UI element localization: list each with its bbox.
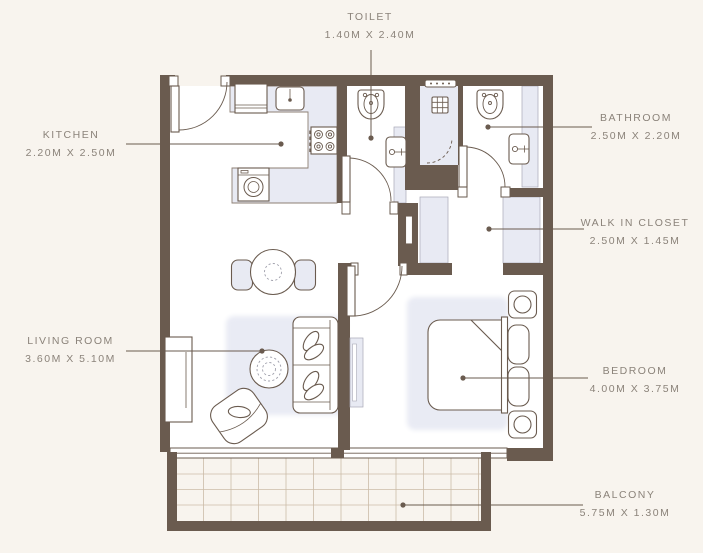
bathroom-sink-icon bbox=[509, 134, 530, 164]
room-dims: 1.40M X 2.40M bbox=[285, 30, 455, 41]
washing-machine-icon bbox=[238, 168, 269, 201]
label-balcony: BALCONY 5.75M X 1.30M bbox=[540, 490, 703, 519]
bathroom-wc-icon bbox=[477, 90, 503, 119]
sofa bbox=[293, 317, 338, 413]
fridge-icon bbox=[235, 84, 267, 113]
nightstand-bottom bbox=[509, 411, 537, 438]
closet-wardrobe-right bbox=[503, 197, 540, 263]
room-name: BALCONY bbox=[540, 490, 703, 501]
room-name: BEDROOM bbox=[550, 366, 703, 377]
kitchen-sink-icon bbox=[276, 87, 304, 110]
headboard bbox=[502, 317, 508, 413]
room-dims: 4.00M X 3.75M bbox=[550, 384, 703, 395]
label-kitchen: KITCHEN 2.20M X 2.50M bbox=[0, 130, 142, 159]
label-bedroom: BEDROOM 4.00M X 3.75M bbox=[550, 366, 703, 395]
room-name: TOILET bbox=[285, 12, 455, 23]
stove-icon bbox=[309, 127, 337, 154]
room-name: BATHROOM bbox=[551, 113, 703, 124]
label-bathroom: BATHROOM 2.50M X 2.20M bbox=[551, 113, 703, 142]
closet-wardrobe-left bbox=[420, 197, 448, 263]
towel-rail-icon bbox=[425, 80, 456, 87]
room-dims: 3.60M X 5.10M bbox=[0, 354, 141, 365]
room-dims: 2.50M X 2.20M bbox=[551, 131, 703, 142]
room-name: LIVING ROOM bbox=[0, 336, 141, 347]
room-dims: 5.75M X 1.30M bbox=[540, 508, 703, 519]
toilet-sink-icon bbox=[386, 137, 407, 167]
room-dims: 2.50M X 1.45M bbox=[550, 236, 703, 247]
nightstand-top bbox=[509, 291, 537, 318]
floorplan-drawing bbox=[0, 0, 703, 553]
bedroom-tv-console bbox=[350, 338, 363, 407]
label-living-room: LIVING ROOM 3.60M X 5.10M bbox=[0, 336, 141, 365]
room-dims: 2.20M X 2.50M bbox=[0, 148, 142, 159]
label-walk-in-closet: WALK IN CLOSET 2.50M X 1.45M bbox=[550, 218, 703, 247]
room-name: KITCHEN bbox=[0, 130, 142, 141]
wall-niche bbox=[406, 216, 413, 244]
balcony-tiles bbox=[176, 458, 481, 521]
coffee-table bbox=[250, 350, 288, 388]
room-name: WALK IN CLOSET bbox=[550, 218, 703, 229]
tv-console bbox=[165, 337, 192, 422]
bed-pillow bbox=[508, 325, 529, 364]
label-toilet: TOILET 1.40M X 2.40M bbox=[285, 12, 455, 41]
bed-pillow bbox=[508, 367, 529, 406]
shower-head-icon bbox=[432, 97, 448, 113]
floorplan-canvas: TOILET 1.40M X 2.40M KITCHEN 2.20M X 2.5… bbox=[0, 0, 703, 553]
